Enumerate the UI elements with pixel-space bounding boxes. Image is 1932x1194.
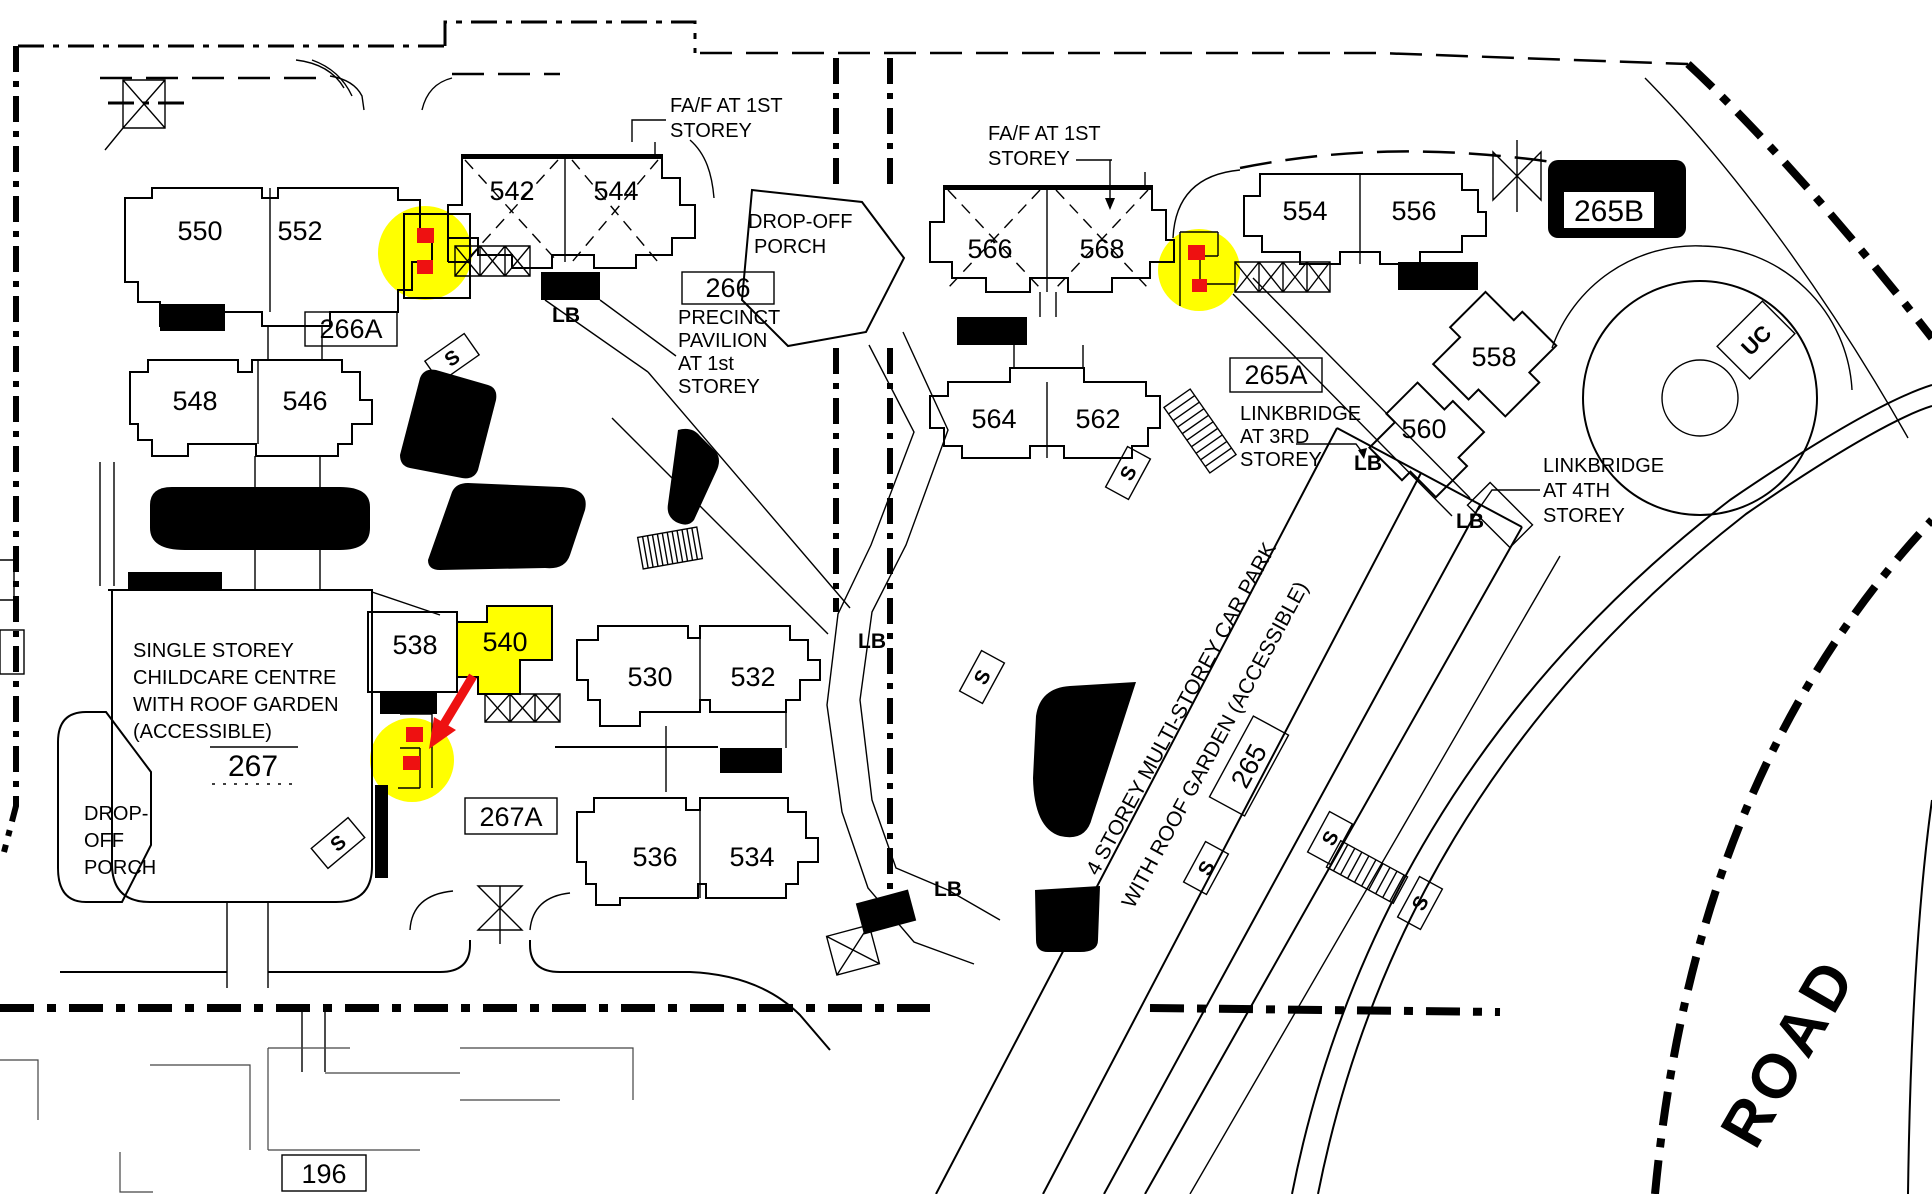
substation-marker-7: S	[1398, 877, 1443, 930]
svg-text:STOREY: STOREY	[1543, 505, 1625, 527]
shelter-black-2	[160, 304, 225, 331]
block-label-560: 560	[1401, 414, 1446, 444]
building-outline-554-556	[1244, 174, 1486, 264]
block-label-564: 564	[971, 404, 1016, 434]
building-outline-536-534	[577, 798, 818, 905]
precinct-label-267: 267	[228, 750, 278, 783]
childcare-text-1: SINGLE STOREY	[133, 640, 294, 662]
childcare-centre-267: SINGLE STOREY CHILDCARE CENTRE WITH ROOF…	[58, 572, 440, 1072]
svg-text:PORCH: PORCH	[754, 236, 826, 258]
linkway-hatch-box	[827, 925, 880, 975]
svg-text:AT 4TH: AT 4TH	[1543, 480, 1610, 502]
block-label-196-box: 196	[282, 1155, 366, 1191]
shelter-black-1	[541, 272, 600, 300]
block-label-568: 568	[1079, 234, 1124, 264]
block-label-196: 196	[301, 1159, 346, 1189]
block-label-554: 554	[1282, 196, 1327, 226]
planting-areas	[150, 370, 719, 570]
highlight-circle-3	[1158, 229, 1240, 311]
block-label-552: 552	[277, 216, 322, 246]
dropoff-left-2: OFF	[84, 830, 124, 852]
linkway-black-shelter	[856, 890, 916, 935]
block-label-548: 548	[172, 386, 217, 416]
stair-hatch-2	[1164, 389, 1236, 473]
childcare-text-2: CHILDCARE CENTRE	[133, 667, 336, 689]
childcare-text-3: WITH ROOF GARDEN	[133, 694, 339, 716]
pavilion-text-1: PRECINCT	[678, 307, 780, 329]
svg-text:267A: 267A	[479, 802, 542, 832]
road-label: ROAD	[1708, 945, 1871, 1158]
childcare-text-4: (ACCESSIBLE)	[133, 721, 272, 743]
block-label-566: 566	[967, 234, 1012, 264]
carpark-outline	[936, 428, 1522, 1194]
red-marker-3a	[1188, 245, 1205, 260]
lb-marker-2: LB	[858, 630, 886, 653]
childcare-outline	[108, 590, 372, 902]
svg-text:STOREY: STOREY	[670, 120, 752, 142]
svg-text:FA/F AT 1ST: FA/F AT 1ST	[670, 95, 783, 117]
pavilion-text-4: STOREY	[678, 376, 760, 398]
building-outline-548-546	[130, 360, 372, 456]
shelter-black-8	[957, 317, 1027, 345]
block-label-540: 540	[482, 627, 527, 657]
block-label-556: 556	[1391, 196, 1436, 226]
precinct-label-266A: 266A	[305, 312, 397, 346]
svg-text:265A: 265A	[1244, 360, 1307, 390]
svg-text:265: 265	[1225, 739, 1273, 793]
faf-right-1: FA/F AT 1ST	[988, 123, 1101, 145]
block-label-544: 544	[593, 176, 638, 206]
block-label-536: 536	[632, 842, 677, 872]
hatch-square-topleft	[105, 80, 190, 150]
block-label-538: 538	[392, 630, 437, 660]
red-marker-2a	[406, 727, 423, 742]
block-label-562: 562	[1075, 404, 1120, 434]
precinct-label-267A: 267A	[465, 798, 557, 834]
substation-marker-4: S	[960, 651, 1005, 704]
block-label-542: 542	[489, 176, 534, 206]
svg-text:STOREY: STOREY	[1240, 449, 1322, 471]
dropoff-left-1: DROP-	[84, 803, 148, 825]
red-marker-3b	[1192, 279, 1207, 292]
svg-text:DROP-OFF: DROP-OFF	[748, 211, 852, 233]
uc-label: UC	[1736, 320, 1776, 360]
precinct-label-266: 266	[682, 272, 774, 304]
precinct-265A: FA/F AT 1ST STOREY 566 568 554 556 564	[930, 123, 1852, 548]
precinct-label-265B: 265B	[1548, 160, 1686, 238]
carpark-265: 4 STOREY MULTI-STOREY CAR PARK WITH ROOF…	[936, 428, 1560, 1194]
lamp-symbol-1	[478, 886, 522, 944]
site-plan-drawing: 550 552 542 544 LB 266A S 548 54	[0, 0, 1932, 1194]
substation-marker-2: S	[311, 818, 364, 869]
planting-blob-carpark-2	[1035, 886, 1100, 952]
linkbridge-4th-label: LINKBRIDGE AT 4TH STOREY	[1478, 455, 1664, 527]
block-label-550: 550	[177, 216, 222, 246]
shelter-black-4	[380, 692, 437, 714]
red-marker-2b	[403, 756, 420, 770]
highlight-circle-1	[378, 206, 472, 300]
block-label-534: 534	[729, 842, 774, 872]
svg-text:265B: 265B	[1574, 195, 1644, 228]
block-label-530: 530	[627, 662, 672, 692]
stair-hatch-1	[638, 527, 703, 569]
hatch-strip-267A	[485, 694, 560, 722]
block-label-558: 558	[1471, 342, 1516, 372]
block-label-532: 532	[730, 662, 775, 692]
precinct-label-265A: 265A	[1230, 358, 1322, 392]
dropoff-left-3: PORCH	[84, 857, 156, 879]
red-marker-1b	[417, 260, 433, 274]
pavilion-text-2: PAVILION	[678, 330, 767, 352]
substation-marker-3: S	[1106, 447, 1151, 500]
shelter-black-7	[1398, 262, 1478, 290]
red-marker-1a	[417, 228, 434, 243]
building-outline-530-532	[577, 626, 820, 726]
shelter-black-5	[375, 785, 388, 878]
faf-right-2: STOREY	[988, 148, 1070, 170]
building-196: 196	[0, 1048, 633, 1192]
edge-fragments	[0, 560, 24, 674]
shelter-black-6	[720, 748, 782, 773]
block-label-546: 546	[282, 386, 327, 416]
building-outline-564-562	[930, 368, 1160, 458]
pavilion-text-3: AT 1st	[678, 353, 734, 375]
lb-marker-5: LB	[934, 878, 962, 901]
hatch-strip-265A	[1235, 262, 1330, 292]
svg-text:266A: 266A	[319, 314, 382, 344]
lamp-symbol-2	[1493, 140, 1541, 212]
shelter-black-3	[128, 572, 222, 590]
linkbridge-3rd-label: LINKBRIDGE AT 3RD STOREY	[1240, 403, 1367, 471]
substation-marker-5: S	[1184, 842, 1229, 895]
site-plan-page: 550 552 542 544 LB 266A S 548 54	[0, 0, 1932, 1194]
